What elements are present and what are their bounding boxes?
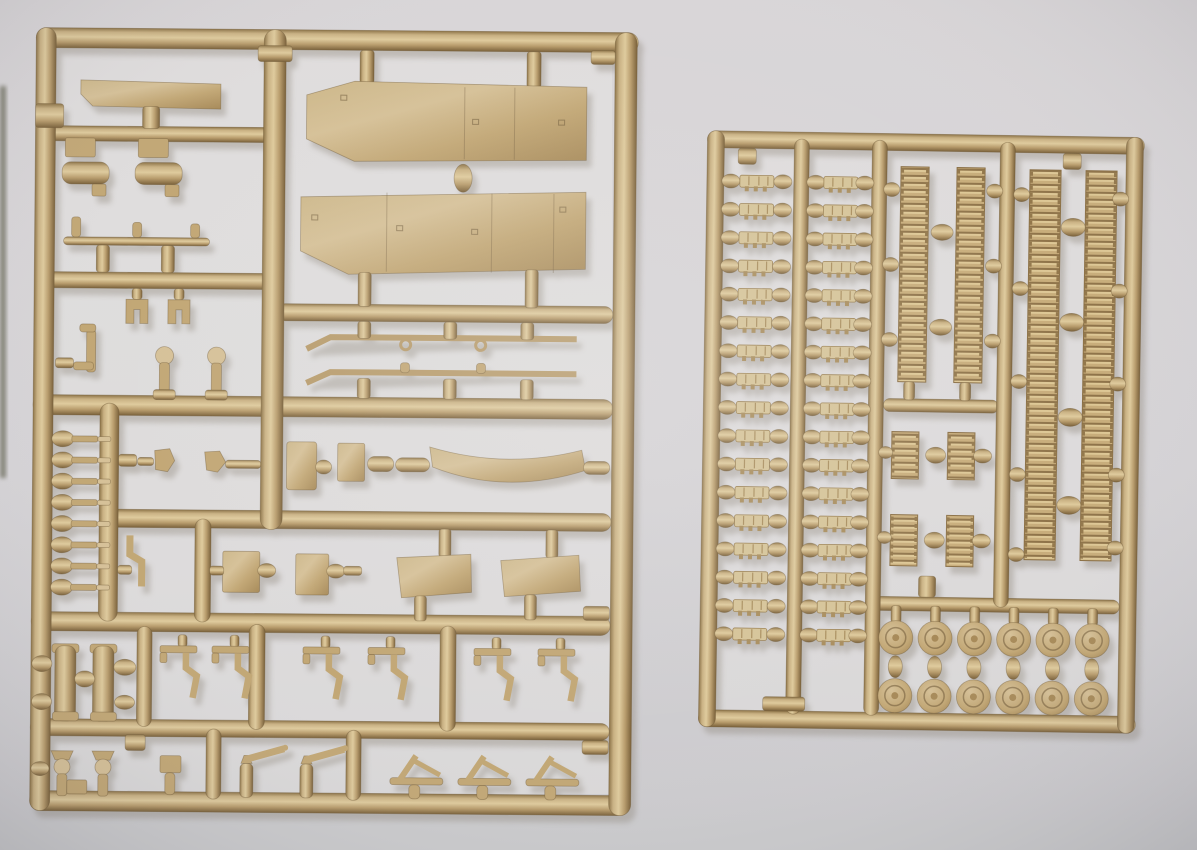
sprue-photo: Photograph of two tan injection-molded p…	[0, 0, 1197, 850]
sprue-photo-canvas	[0, 0, 1197, 850]
photo-vignette	[0, 0, 1197, 850]
